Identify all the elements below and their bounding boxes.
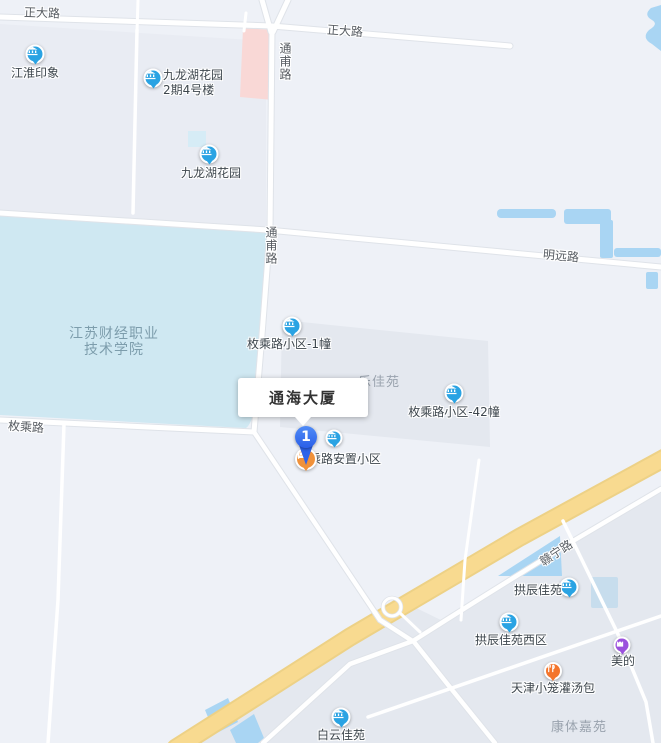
- bank-glyph-icon: [202, 147, 212, 156]
- bank-glyph-icon: [28, 47, 38, 56]
- poi-label[interactable]: 拱辰佳苑西区: [475, 631, 547, 648]
- poi-label[interactable]: 九龙湖花园: [181, 164, 241, 181]
- road-stub-top2: [244, 13, 246, 31]
- cutlery-glyph-icon: [546, 664, 555, 673]
- bank-glyph-icon: [562, 580, 572, 589]
- map-canvas[interactable]: 正大路 正大路 通甫路 通甫路 明远路 枚乘路 赣宁路 江苏财经职业 技术学院 …: [0, 0, 661, 743]
- road-campus-west: [48, 424, 64, 743]
- poi-label[interactable]: 枚乘路小区-42幢: [408, 403, 500, 420]
- poi-label-line2[interactable]: 2期4号楼: [163, 81, 214, 98]
- residence-icon[interactable]: [500, 613, 519, 632]
- poi-label[interactable]: 江淮印象: [11, 64, 59, 81]
- poi-label[interactable]: 枚乘路小区-1幢: [247, 335, 331, 352]
- restaurant-icon[interactable]: [544, 662, 562, 680]
- residence-icon[interactable]: [560, 578, 579, 597]
- selected-place-infobox[interactable]: 通海大厦: [238, 378, 368, 417]
- water-strip-east: [614, 248, 661, 257]
- selected-place-title: 通海大厦: [269, 387, 337, 408]
- pond-small-cyan: [188, 131, 206, 147]
- pin-tail: [299, 445, 313, 472]
- residence-icon[interactable]: [326, 430, 343, 447]
- bank-glyph-icon: [502, 615, 512, 624]
- bank-glyph-icon: [334, 710, 344, 719]
- shop-icon[interactable]: [614, 637, 631, 654]
- poi-label[interactable]: 美的: [611, 652, 635, 669]
- poi-label[interactable]: 拱辰佳苑: [514, 581, 562, 598]
- poi-label[interactable]: 白云佳苑: [317, 726, 365, 743]
- residence-icon[interactable]: [445, 384, 464, 403]
- bank-glyph-icon: [285, 319, 295, 328]
- water-stalk: [600, 220, 613, 258]
- water-pill: [497, 209, 556, 218]
- bag-glyph-icon: [616, 639, 625, 648]
- residence-icon[interactable]: [144, 69, 163, 88]
- water-topright: [646, 5, 661, 51]
- basemap-svg: [0, 0, 661, 743]
- residence-icon[interactable]: [283, 317, 302, 336]
- residence-icon[interactable]: [200, 145, 219, 164]
- road-thin-north-south: [461, 460, 479, 620]
- bank-glyph-icon: [447, 386, 457, 395]
- poi-label[interactable]: 天津小笼灌汤包: [511, 679, 595, 696]
- residence-icon[interactable]: [332, 708, 351, 727]
- parcel-campus: [0, 216, 268, 428]
- bank-glyph-icon: [146, 71, 156, 80]
- bank-glyph-icon: [328, 432, 337, 440]
- poi-label[interactable]: 乘路安置小区: [309, 450, 381, 467]
- road-stub-top1: [137, 0, 138, 32]
- residence-icon[interactable]: [26, 45, 45, 64]
- water-bit-east: [646, 272, 658, 289]
